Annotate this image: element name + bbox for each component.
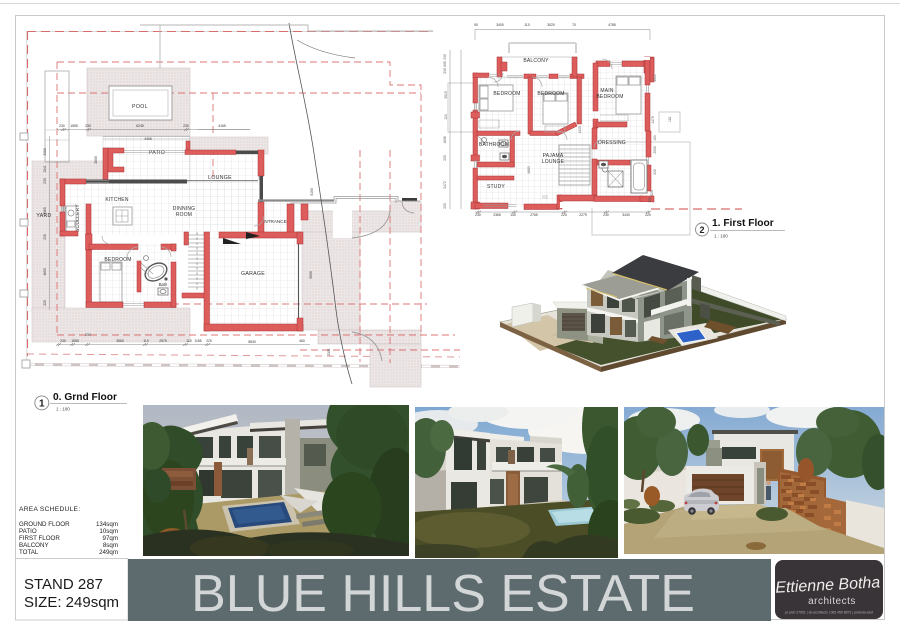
svg-text:Bath: Bath (159, 282, 168, 287)
svg-text:134sqm: 134sqm (96, 521, 118, 528)
svg-text:2365: 2365 (493, 213, 501, 217)
svg-text:2800: 2800 (94, 156, 98, 164)
svg-text:2279: 2279 (579, 213, 587, 217)
svg-text:625: 625 (650, 190, 654, 196)
svg-text:AREA SCHEDULE:: AREA SCHEDULE: (19, 506, 80, 513)
svg-text:1185: 1185 (194, 339, 201, 343)
svg-text:110: 110 (143, 339, 149, 343)
svg-text:230: 230 (60, 339, 66, 343)
svg-text:230: 230 (43, 178, 47, 184)
svg-text:130: 130 (510, 213, 516, 217)
svg-text:2472: 2472 (443, 181, 447, 189)
svg-text:2301: 2301 (327, 348, 331, 356)
svg-text:220: 220 (206, 339, 212, 343)
svg-text:230: 230 (603, 213, 609, 217)
svg-text:220: 220 (561, 213, 567, 217)
svg-text:1479: 1479 (651, 116, 655, 124)
svg-text:1430: 1430 (578, 126, 582, 134)
svg-text:5830: 5830 (248, 340, 256, 344)
svg-text:4043: 4043 (653, 74, 657, 82)
svg-text:5190: 5190 (310, 188, 314, 196)
svg-text:230: 230 (475, 213, 481, 217)
svg-text:460: 460 (299, 339, 305, 343)
svg-text:110: 110 (444, 114, 448, 119)
svg-text:5905: 5905 (309, 271, 313, 279)
svg-text:1555: 1555 (70, 124, 78, 128)
svg-text:STAND 287: STAND 287 (24, 576, 103, 593)
svg-text:220: 220 (43, 300, 47, 306)
svg-text:220: 220 (645, 213, 651, 217)
svg-text:PATIO: PATIO (149, 150, 165, 156)
svg-text:97qm: 97qm (103, 535, 118, 542)
svg-text:230: 230 (85, 124, 91, 128)
svg-text:895: 895 (443, 61, 447, 67)
svg-text:PATIO: PATIO (19, 528, 37, 535)
svg-text:BLUE HILLS ESTATE: BLUE HILLS ESTATE (191, 565, 695, 623)
svg-text:90: 90 (474, 23, 478, 27)
svg-text:4690: 4690 (43, 268, 47, 276)
svg-text:4406: 4406 (144, 137, 152, 141)
svg-text:3515: 3515 (444, 91, 448, 99)
svg-text:3020: 3020 (547, 23, 555, 27)
svg-text:BEDROOM: BEDROOM (493, 91, 520, 97)
svg-text:LOUNGE: LOUNGE (542, 159, 565, 165)
svg-text:1 : 100: 1 : 100 (714, 234, 728, 239)
svg-text:3400: 3400 (496, 23, 504, 27)
svg-text:153: 153 (653, 135, 657, 141)
svg-text:1806: 1806 (443, 136, 447, 144)
svg-text:BALCONY: BALCONY (19, 542, 49, 549)
svg-text:2765: 2765 (530, 213, 538, 217)
svg-text:2: 2 (699, 225, 704, 235)
svg-text:SIZE: 249sqm: SIZE: 249sqm (24, 594, 119, 611)
svg-text:3560: 3560 (116, 339, 124, 343)
svg-text:230: 230 (85, 333, 91, 337)
svg-text:1541: 1541 (43, 165, 47, 173)
svg-text:KITCHEN: KITCHEN (105, 197, 129, 203)
svg-text:220: 220 (653, 169, 657, 175)
svg-text:STUDY: STUDY (487, 184, 505, 190)
svg-text:8sqm: 8sqm (103, 542, 118, 549)
svg-text:230: 230 (443, 54, 447, 60)
svg-text:110: 110 (186, 339, 192, 343)
svg-text:BEDROOM: BEDROOM (537, 91, 564, 97)
svg-text:pr.arch 27651 | eb.architects: pr.arch 27651 | eb.architects | 082 459 … (785, 611, 873, 615)
svg-text:4165: 4165 (218, 124, 226, 128)
svg-text:3565: 3565 (43, 207, 47, 215)
svg-text:1555: 1555 (71, 339, 79, 343)
svg-text:110: 110 (668, 117, 672, 122)
svg-text:249qm: 249qm (99, 549, 118, 556)
svg-text:10sqm: 10sqm (99, 528, 118, 535)
svg-text:220: 220 (443, 203, 447, 209)
svg-text:2050: 2050 (653, 146, 657, 154)
svg-text:2575: 2575 (159, 339, 167, 343)
svg-text:BATHROOM: BATHROOM (479, 142, 509, 148)
svg-text:BEDROOM: BEDROOM (596, 94, 623, 100)
svg-text:TOTAL: TOTAL (19, 549, 39, 556)
svg-text:0. Grnd Floor: 0. Grnd Floor (53, 392, 117, 403)
svg-text:3430: 3430 (622, 213, 630, 217)
svg-text:110: 110 (524, 23, 530, 27)
svg-text:230: 230 (43, 234, 47, 240)
svg-text:ROOM: ROOM (176, 212, 192, 218)
svg-text:380: 380 (648, 197, 652, 203)
svg-text:70: 70 (572, 23, 576, 27)
svg-text:BALCONY: BALCONY (523, 58, 549, 64)
svg-text:GARAGE: GARAGE (241, 271, 265, 277)
svg-text:DRESSING: DRESSING (598, 140, 626, 146)
svg-text:GROUND FLOOR: GROUND FLOOR (19, 521, 70, 528)
svg-text:FIRST FLOOR: FIRST FLOOR (19, 535, 60, 542)
svg-text:architects: architects (808, 596, 856, 607)
svg-text:POOL: POOL (132, 104, 148, 110)
svg-text:4883: 4883 (527, 166, 531, 174)
svg-text:3380: 3380 (43, 148, 47, 156)
svg-text:1 : 100: 1 : 100 (56, 407, 70, 412)
svg-text:ENTRANCE: ENTRANCE (261, 219, 286, 224)
svg-text:230: 230 (59, 124, 65, 128)
svg-text:4785: 4785 (608, 23, 616, 27)
svg-text:230: 230 (443, 68, 447, 74)
svg-text:1. First Floor: 1. First Floor (712, 218, 774, 229)
svg-text:220: 220 (443, 155, 447, 161)
svg-text:230: 230 (183, 124, 189, 128)
svg-text:6245: 6245 (136, 124, 144, 128)
svg-text:1: 1 (39, 399, 45, 410)
